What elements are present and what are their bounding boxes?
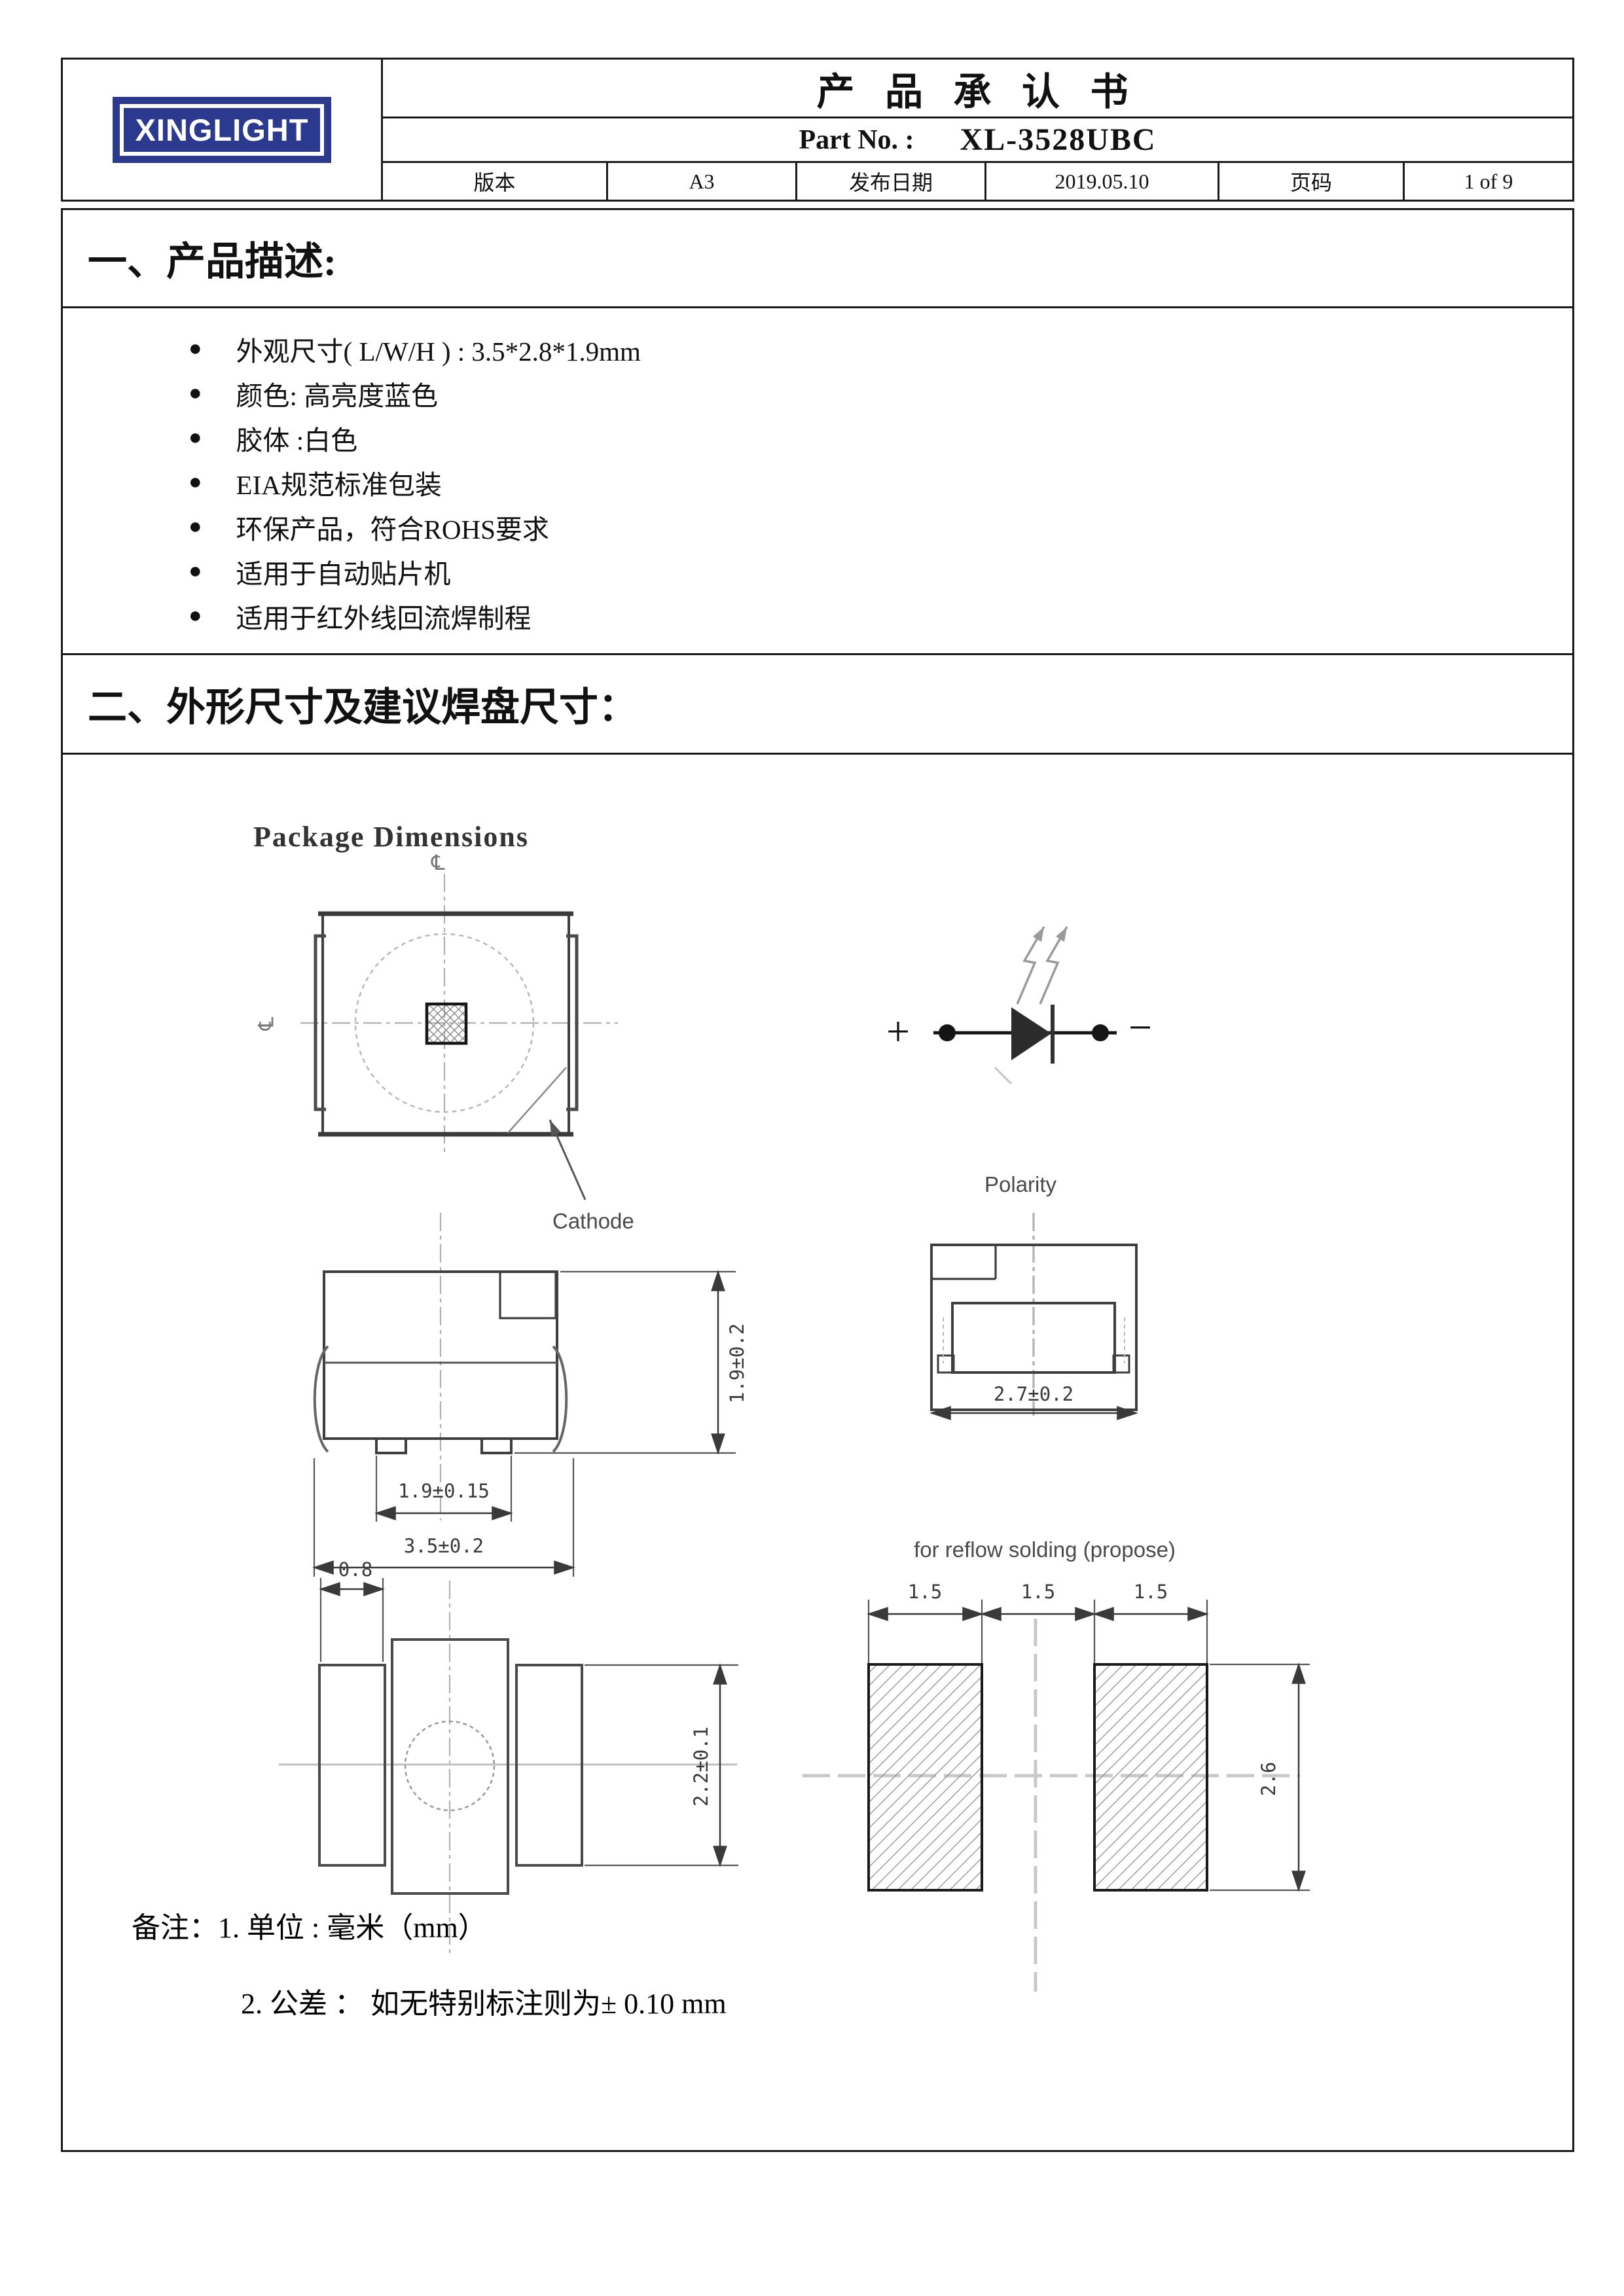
bullet-icon: ● bbox=[189, 516, 202, 538]
cathode-chamfer-line bbox=[508, 1067, 566, 1133]
dim-side-inner-width: 1.9±0.15 bbox=[398, 1480, 490, 1502]
polarity-label: Polarity bbox=[984, 1172, 1056, 1197]
dim-bottom-pad-width: 0.8 bbox=[323, 1558, 388, 1581]
logo-cell: XINGLIGHT bbox=[63, 60, 383, 200]
bullet-icon: ● bbox=[189, 560, 202, 583]
top-view-drawing bbox=[300, 874, 618, 1200]
section2-heading: 二、外形尺寸及建议焊盘尺寸： bbox=[63, 655, 1572, 755]
part-no-value: XL-3528UBC bbox=[960, 122, 1157, 158]
list-item: ● 外观尺寸( L/W/H ) : 3.5*2.8*1.9mm bbox=[63, 327, 1572, 371]
note-line-1: 备注：1. 单位 : 毫米（mm） bbox=[132, 1904, 487, 1946]
bullet-icon: ● bbox=[189, 382, 202, 404]
part-no-label: Part No. : bbox=[799, 124, 914, 156]
dim-reflow-center: 1.5 bbox=[1005, 1581, 1071, 1603]
reflow-pad-drawing bbox=[803, 1600, 1310, 1992]
note-line-2: 2. 公差 ： 如无特别标注则为± 0.10 mm bbox=[241, 1980, 727, 2022]
version-row: 版本 A3 发布日期 2019.05.10 页码 1 of 9 bbox=[383, 163, 1572, 200]
header-right: 产 品 承 认 书 Part No. : XL-3528UBC 版本 A3 发布… bbox=[383, 60, 1572, 200]
dim-end-width: 2.7±0.2 bbox=[988, 1383, 1079, 1405]
solder-pad-right bbox=[1094, 1664, 1207, 1890]
list-item: ● 适用于红外线回流焊制程 bbox=[63, 594, 1572, 638]
dim-side-width: 3.5±0.2 bbox=[398, 1535, 490, 1557]
dim-reflow-height: 2.6 bbox=[1257, 1733, 1280, 1825]
product-description-list: ● 外观尺寸( L/W/H ) : 3.5*2.8*1.9mm ● 颜色: 高亮… bbox=[63, 308, 1572, 655]
polarity-diagram bbox=[933, 927, 1117, 1084]
dim-side-height: 1.9±0.2 bbox=[726, 1318, 748, 1409]
list-item: ● 环保产品，符合ROHS要求 bbox=[63, 505, 1572, 549]
bullet-icon: ● bbox=[189, 471, 202, 493]
cathode-label: Cathode bbox=[552, 1209, 634, 1234]
document-title: 产 品 承 认 书 bbox=[383, 60, 1572, 118]
page-value: 1 of 9 bbox=[1403, 163, 1572, 200]
led-chip-hatch-square bbox=[427, 1004, 466, 1043]
list-item: ● 胶体 :白色 bbox=[63, 416, 1572, 460]
section1-heading: 一、产品描述: bbox=[63, 210, 1572, 308]
package-dimensions-title: Package Dimensions bbox=[253, 820, 529, 853]
version-value: A3 bbox=[606, 163, 795, 200]
centerline-icon: ℄ bbox=[253, 1017, 278, 1031]
dim-reflow-left: 1.5 bbox=[892, 1581, 958, 1603]
centerline-icon: ℄ bbox=[431, 850, 445, 875]
dim-reflow-right: 1.5 bbox=[1118, 1581, 1183, 1603]
part-number-row: Part No. : XL-3528UBC bbox=[383, 118, 1572, 163]
dim-bottom-pad-height: 2.2±0.1 bbox=[690, 1721, 712, 1812]
minus-sign: − bbox=[1128, 1003, 1152, 1052]
reflow-title: for reflow solding (propose) bbox=[897, 1537, 1192, 1562]
dimension-drawing-area: Package Dimensions ℄ ℄ Cathode + − Polar… bbox=[63, 755, 1572, 2152]
logo-text: XINGLIGHT bbox=[135, 113, 309, 147]
list-item: ● 颜色: 高亮度蓝色 bbox=[63, 371, 1572, 416]
plus-sign: + bbox=[886, 1007, 910, 1056]
list-item: ● EIA规范标准包装 bbox=[63, 460, 1572, 505]
list-item: ● 适用于自动贴片机 bbox=[63, 549, 1572, 594]
bullet-icon: ● bbox=[189, 338, 202, 360]
release-date-value: 2019.05.10 bbox=[984, 163, 1218, 200]
bottom-view-drawing bbox=[279, 1578, 738, 1958]
version-label: 版本 bbox=[383, 163, 606, 200]
side-view-drawing bbox=[314, 1213, 736, 1577]
body-box: 一、产品描述: ● 外观尺寸( L/W/H ) : 3.5*2.8*1.9mm … bbox=[61, 208, 1574, 2152]
xinglight-logo: XINGLIGHT bbox=[113, 97, 332, 163]
bullet-icon: ● bbox=[189, 427, 202, 449]
release-date-label: 发布日期 bbox=[795, 163, 984, 200]
header-table: XINGLIGHT 产 品 承 认 书 Part No. : XL-3528UB… bbox=[61, 58, 1574, 202]
diode-triangle bbox=[1011, 1007, 1051, 1060]
bullet-icon: ● bbox=[189, 605, 202, 627]
page-label: 页码 bbox=[1218, 163, 1403, 200]
solder-pad-left bbox=[869, 1664, 982, 1890]
datasheet-page: XINGLIGHT 产 品 承 认 书 Part No. : XL-3528UB… bbox=[0, 0, 1624, 2296]
